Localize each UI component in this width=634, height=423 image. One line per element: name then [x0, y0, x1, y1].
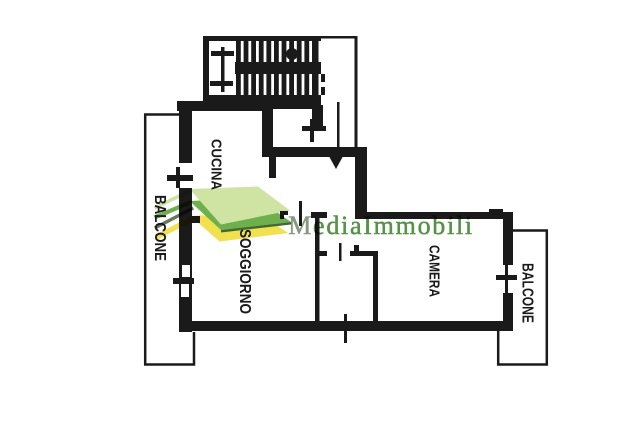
svg-text:MediaImmobili: MediaImmobili: [288, 211, 474, 240]
svg-text:BALCONE: BALCONE: [151, 195, 168, 261]
svg-text:SOGGIORNO: SOGGIORNO: [236, 229, 253, 314]
svg-text:BALCONE: BALCONE: [518, 263, 535, 323]
svg-text:CUCINA: CUCINA: [208, 139, 225, 190]
svg-text:CAMERA: CAMERA: [426, 245, 442, 297]
